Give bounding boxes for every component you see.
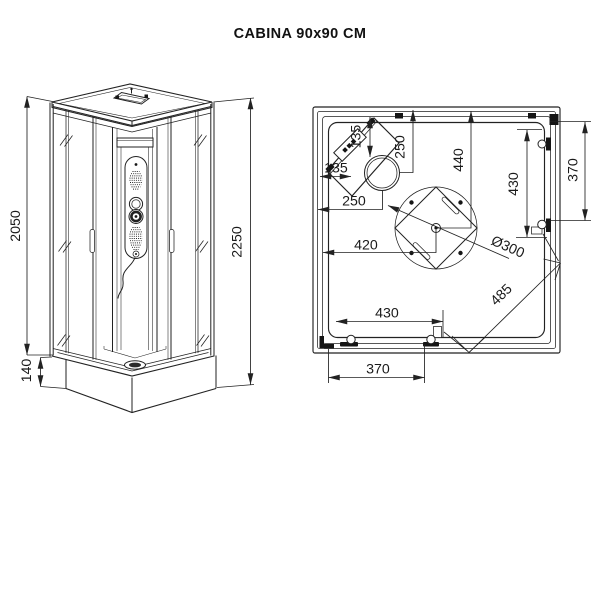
panel-led [135,163,138,166]
front-elevation-view: 2050 140 2250 [8,84,254,413]
rail-stop [528,113,536,119]
dim-label-center-from-left: 420 [354,238,378,254]
dim-label-base-height: 140 [19,359,35,383]
rail-stop [395,113,403,119]
glass-hatch [59,241,72,253]
dim-label-right-wall-outer: 370 [566,158,582,182]
dim-label-bottom-wall-outer: 370 [366,362,390,378]
door-roller [538,220,547,229]
dim-label-corner-wall-top: 135 [349,125,365,149]
corner-bracket [550,114,559,125]
dim-label-right-wall-bracket: 430 [506,172,522,196]
cabin-technical-drawing: 2050 140 2250 [0,0,600,600]
dim-label-head-from-top: 250 [393,135,409,159]
base-skirt [66,389,216,413]
top-plan-view: 135 135 250 250 440 420 430 370 [313,107,591,383]
column-top-bracket [117,138,153,147]
drawing-sheet: CABINA 90x90 CM [0,0,600,600]
corner-bracket [320,336,325,348]
roller-tab [434,327,442,338]
door-roller [427,335,435,343]
shower-column [113,127,158,352]
dim-label-corner-wall-left: 135 [324,161,348,177]
dim-label-head-from-left: 250 [342,194,366,210]
dim-label-glass-height: 2050 [8,210,24,242]
dim-label-center-from-top: 440 [451,148,467,172]
left-door-handle [90,230,95,253]
door-roller [347,335,355,343]
shower-hose [118,258,135,299]
control-knob-upper [129,197,142,210]
shower-tray [52,346,216,413]
dim-label-total-height: 2250 [230,226,246,258]
dim-label-bottom-wall-inner: 430 [375,306,399,322]
door-roller [538,140,546,148]
right-door-handle [169,230,174,253]
glass-hatch [196,241,209,253]
